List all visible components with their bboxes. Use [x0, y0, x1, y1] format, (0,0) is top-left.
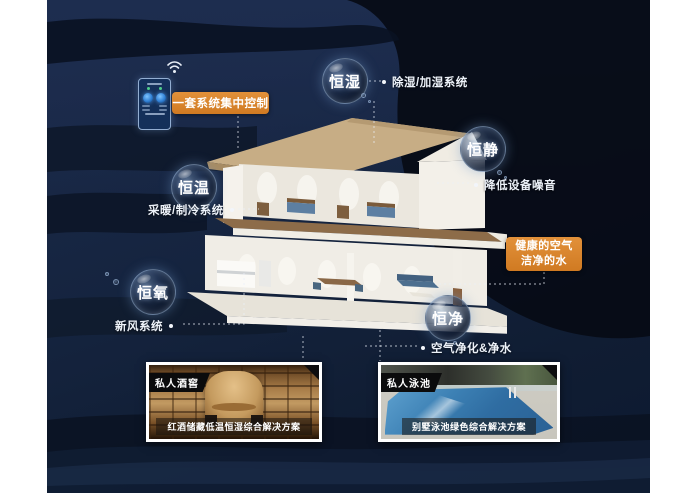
panel-readout-row [142, 109, 167, 111]
label-fresh-air: 新风系统 [115, 318, 173, 334]
label-heating-text: 采暖/制冷系统 [148, 202, 224, 218]
label-dehumidify-system: 除湿/加湿系统 [382, 74, 468, 90]
poster-page: 恒湿 恒静 恒温 恒氧 恒净 除湿/加湿系统 [0, 0, 700, 497]
corner-ribbon [304, 365, 319, 380]
mini-bubble [361, 93, 366, 98]
bubble-oxygen: 恒氧 [130, 269, 176, 315]
label-dehumidify-text: 除湿/加湿系统 [392, 74, 468, 90]
mini-bubble [113, 279, 119, 285]
bullet-dot [421, 346, 425, 350]
panel-menu-bar [145, 113, 165, 115]
bullet-dot [169, 324, 173, 328]
callout-central-control: 一套系统集中控制 [172, 92, 269, 114]
label-fresh-air-text: 新风系统 [115, 318, 163, 334]
mini-bubble [368, 100, 371, 103]
label-heating-cooling: 采暖/制冷系统 [148, 202, 234, 218]
mini-bubble [497, 170, 502, 175]
bullet-dot [230, 208, 234, 212]
label-purification: 空气净化&净水 [421, 340, 512, 356]
photo-swimming-pool: 私人泳池 别墅泳池绿色综合解决方案 [378, 362, 560, 442]
callout-healthy-air-water: 健康的空气 洁净的水 [506, 237, 582, 271]
readout-segment [159, 105, 167, 107]
panel-knobs [142, 93, 167, 103]
bubble-clean-label: 恒净 [432, 308, 464, 329]
bubble-temperature-label: 恒温 [178, 177, 210, 198]
poster-canvas: 恒湿 恒静 恒温 恒氧 恒净 除湿/加湿系统 [47, 0, 650, 493]
bubble-humidity-label: 恒湿 [329, 71, 361, 92]
bubble-quiet: 恒静 [460, 126, 506, 172]
bubble-clean: 恒净 [425, 295, 471, 341]
photo-caption-pool: 别墅泳池绿色综合解决方案 [402, 418, 536, 435]
readout-segment [142, 109, 150, 111]
label-purification-text: 空气净化&净水 [431, 340, 512, 356]
photo-caption-wine-cellar: 红酒储藏低温恒湿综合解决方案 [156, 418, 312, 435]
control-knob [156, 93, 166, 103]
bullet-dot [474, 183, 478, 187]
pool-ladder [509, 387, 511, 397]
green-led [159, 87, 162, 90]
readout-segment [142, 105, 150, 107]
corner-ribbon [542, 365, 557, 380]
photo-tag-wine-cellar: 私人酒窖 [149, 373, 210, 392]
smart-control-panel [138, 78, 171, 130]
panel-status-leds [142, 87, 167, 90]
readout-segment [159, 109, 167, 111]
label-noise-reduction: 降低设备噪音 [474, 177, 556, 193]
mini-bubble [105, 272, 109, 276]
bubble-oxygen-label: 恒氧 [137, 282, 169, 303]
bubble-quiet-label: 恒静 [467, 139, 499, 160]
control-knob [143, 93, 153, 103]
wifi-icon [166, 60, 183, 74]
photo-tag-pool: 私人泳池 [381, 373, 442, 392]
photo-wine-cellar: 私人酒窖 红酒储藏低温恒湿综合解决方案 [146, 362, 322, 442]
bullet-dot [382, 80, 386, 84]
green-led [147, 87, 150, 90]
panel-readout-row [142, 105, 167, 107]
panel-title-bar [147, 83, 162, 85]
label-noise-text: 降低设备噪音 [484, 177, 556, 193]
callout-healthy-air-line: 健康的空气 [515, 239, 573, 254]
callout-clean-water-line: 洁净的水 [521, 254, 567, 269]
